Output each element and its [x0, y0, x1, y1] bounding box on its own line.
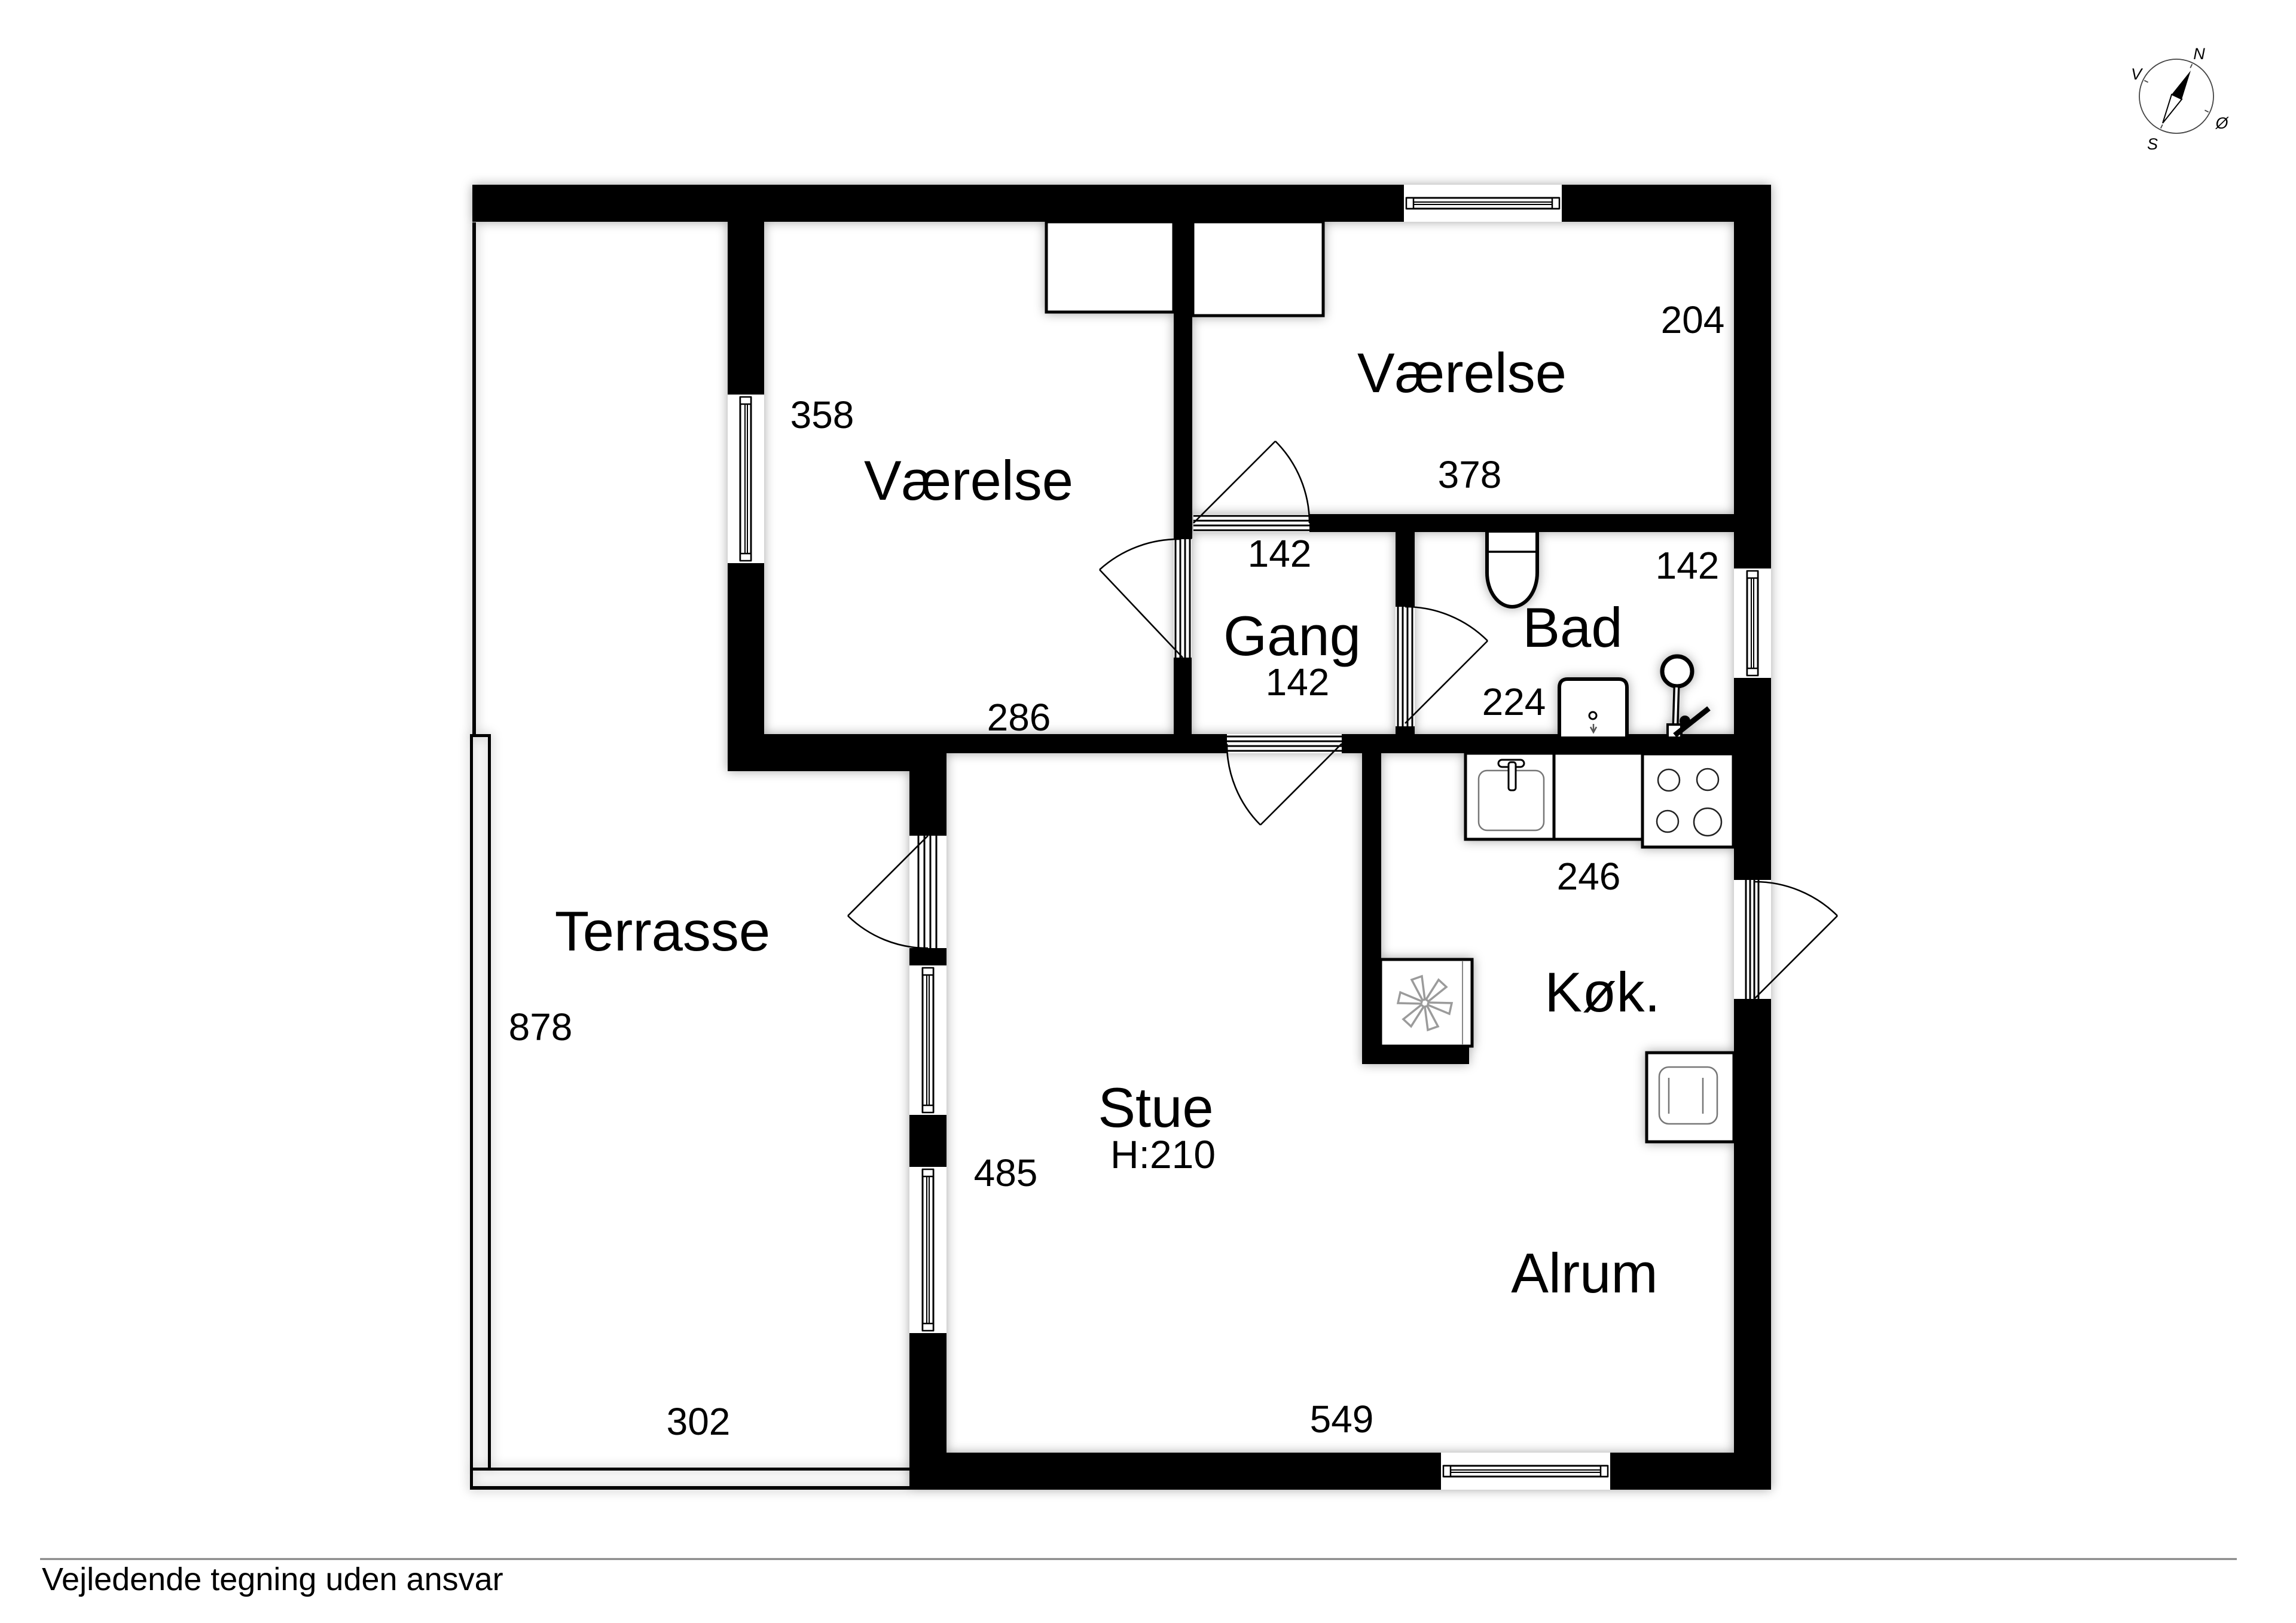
svg-text:Vejledende tegning uden ansvar: Vejledende tegning uden ansvar	[42, 1561, 503, 1597]
svg-text:302: 302	[667, 1400, 731, 1443]
svg-text:Ø: Ø	[2215, 114, 2229, 132]
svg-text:485: 485	[974, 1151, 1038, 1194]
svg-text:142: 142	[1248, 532, 1312, 575]
svg-text:286: 286	[987, 696, 1051, 739]
svg-text:142: 142	[1656, 544, 1720, 587]
svg-text:378: 378	[1438, 453, 1502, 496]
svg-text:Gang: Gang	[1223, 604, 1361, 667]
svg-text:N: N	[2193, 45, 2205, 63]
svg-text:Køk.: Køk.	[1544, 961, 1660, 1023]
svg-text:246: 246	[1557, 855, 1621, 898]
svg-text:204: 204	[1661, 298, 1725, 341]
svg-text:Terrasse: Terrasse	[555, 900, 770, 962]
svg-text:H:210: H:210	[1110, 1132, 1216, 1176]
svg-text:Stue: Stue	[1098, 1076, 1213, 1139]
svg-text:Værelse: Værelse	[864, 449, 1073, 512]
svg-text:358: 358	[790, 393, 854, 436]
svg-text:S: S	[2147, 135, 2158, 153]
svg-text:142: 142	[1266, 661, 1330, 704]
svg-text:Bad: Bad	[1522, 596, 1622, 659]
svg-text:878: 878	[509, 1005, 573, 1049]
svg-text:Værelse: Værelse	[1357, 341, 1567, 404]
svg-text:V: V	[2131, 65, 2144, 83]
svg-text:224: 224	[1482, 680, 1546, 723]
svg-text:549: 549	[1310, 1398, 1374, 1441]
svg-text:Alrum: Alrum	[1511, 1242, 1657, 1304]
